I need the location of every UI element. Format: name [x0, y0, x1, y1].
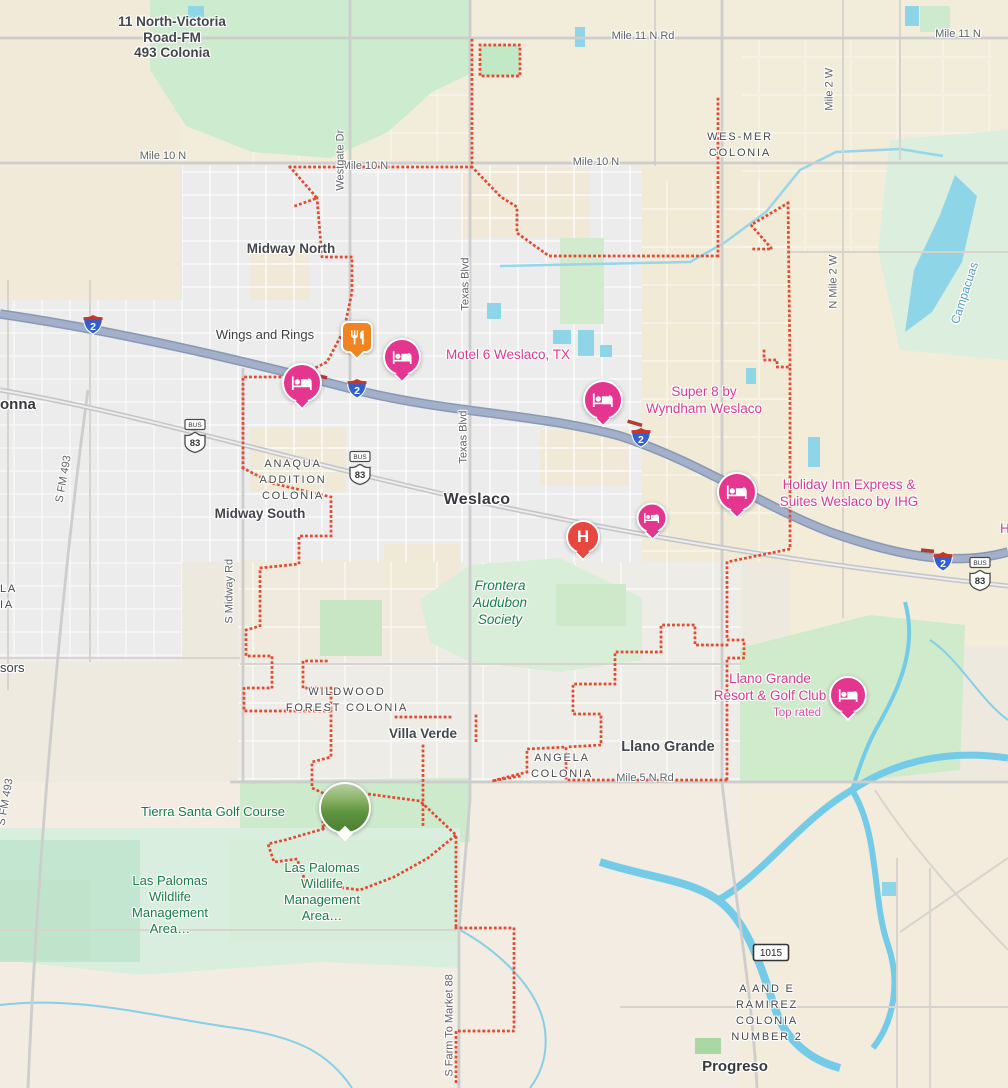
poi-las-palomas-2[interactable]: Las Palomas Wildlife Management Area…: [284, 860, 360, 923]
restaurant-icon: [349, 329, 366, 346]
road-mile-5-n-rd: Mile 5 N Rd: [616, 772, 673, 785]
poi-tierra-santa-golf[interactable]: Tierra Santa Golf Course: [141, 804, 285, 820]
map-canvas[interactable]: 2222BUS83BUS83BUS831015 11 North-Victori…: [0, 0, 1008, 1088]
label-midway-south: Midway South: [215, 506, 306, 522]
label-villa-verde: Villa Verde: [389, 726, 457, 742]
pin-hotel-weslaco[interactable]: [637, 503, 668, 534]
hotel-bed-icon: [726, 481, 748, 503]
road-mile-10-n-3: Mile 10 N: [573, 156, 619, 169]
road-texas-blvd-1: Texas Blvd: [459, 257, 472, 310]
label-llano-grande: Llano Grande: [621, 739, 714, 756]
hotel-bed-icon: [838, 685, 858, 705]
road-n-mile-2-w: N Mile 2 W: [827, 255, 840, 309]
poi-las-palomas-1[interactable]: Las Palomas Wildlife Management Area…: [132, 873, 208, 936]
pin-hospital[interactable]: H: [566, 520, 600, 554]
hotel-bed-icon: [644, 510, 660, 526]
road-mile-10-n-1: Mile 10 N: [140, 150, 186, 163]
hotel-bed-icon: [592, 389, 614, 411]
label-cut-h: H: [1000, 521, 1008, 538]
road-mile-11-n: Mile 11 N: [935, 28, 981, 41]
road-n-main-st: N Main St: [0, 322, 1, 370]
city-weslaco: Weslaco: [444, 491, 511, 509]
hotel-bed-icon: [392, 347, 412, 367]
poi-super-8[interactable]: Super 8 by Wyndham Weslaco: [646, 384, 762, 418]
road-mile-10-n-2: Mile 10 N: [342, 160, 388, 173]
label-anaqua-addition-colonia: ANAQUA ADDITION COLONIA: [260, 457, 327, 505]
pin-hotel-holiday-inn[interactable]: [717, 472, 757, 512]
label-wes-mer-colonia: WES-MER COLONIA: [707, 130, 773, 162]
road-s-midway-rd: S Midway Rd: [223, 559, 236, 624]
photo-tierra-santa-golf[interactable]: [319, 782, 371, 834]
poi-frontera-audubon[interactable]: Frontera Audubon Society: [473, 578, 527, 629]
poi-holiday-inn[interactable]: Holiday Inn Express & Suites Weslaco by …: [780, 477, 919, 511]
road-texas-blvd-2: Texas Blvd: [457, 410, 470, 463]
pin-hotel-llano-grande[interactable]: [829, 676, 867, 714]
label-angela-colonia: ANGELA COLONIA: [531, 751, 593, 783]
label-wildwood-forest-colonia: WILDWOOD FOREST COLONIA: [286, 685, 408, 717]
city-progreso: Progreso: [702, 1058, 768, 1075]
pin-hotel-west[interactable]: [282, 363, 322, 403]
poi-wings-and-rings[interactable]: Wings and Rings: [216, 328, 314, 343]
hotel-bed-icon: [291, 372, 313, 394]
pin-hotel-super-8[interactable]: [583, 380, 623, 420]
label-11-north-victoria-colonia: 11 North-Victoria Road-FM 493 Colonia: [118, 14, 226, 61]
city-donna-cut: onna: [0, 396, 36, 413]
road-westgate-dr: Westgate Dr: [334, 130, 347, 191]
poi-llano-grande-resort[interactable]: Llano Grande Resort & Golf Club: [714, 671, 827, 705]
pin-restaurant-wings-and-rings[interactable]: [341, 321, 373, 353]
pin-hotel-motel-6[interactable]: [383, 338, 421, 376]
road-s-farm-to-market-88: S Farm To Market 88: [443, 974, 456, 1077]
label-cut-sors: sors: [0, 661, 25, 676]
poi-llano-grande-top-rated: Top rated: [773, 707, 821, 720]
label-cut-la-ia: LA IA: [0, 582, 17, 614]
road-mile-11-n-rd: Mile 11 N Rd: [612, 30, 675, 43]
road-mile-2-w: Mile 2 W: [823, 68, 836, 111]
poi-motel-6-weslaco[interactable]: Motel 6 Weslaco, TX: [446, 347, 570, 364]
label-a-and-e-ramirez: A AND E RAMIREZ COLONIA NUMBER 2: [731, 982, 802, 1046]
hospital-h-icon: H: [577, 527, 589, 547]
label-midway-north: Midway North: [247, 241, 336, 257]
